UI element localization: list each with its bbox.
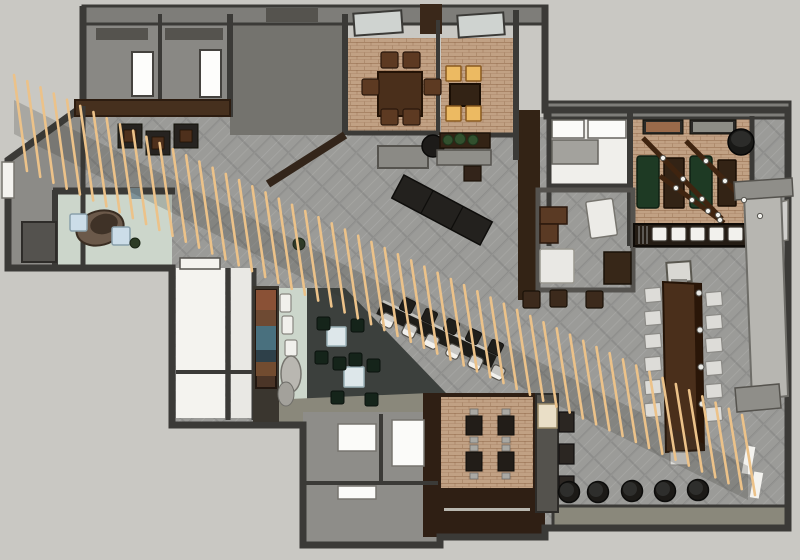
mural-stripe-umber [256, 362, 276, 376]
lounge-chairs-item [317, 317, 330, 330]
dining-chairs-item [362, 79, 379, 95]
terrace-tables-item [466, 452, 482, 471]
terrace-wood-step [444, 508, 530, 511]
ne-room-counter [552, 140, 598, 164]
terrace-chair-nubs-item [470, 445, 478, 451]
communal-chairs-right-item [705, 383, 722, 398]
entry-table-1 [70, 214, 87, 231]
wood-counter-band [75, 100, 230, 116]
small-table [464, 166, 481, 181]
office-stools-item [523, 291, 540, 308]
lounge-chairs-item [365, 393, 378, 406]
black-cylinder-top [731, 131, 751, 147]
dining-table-right [450, 84, 480, 106]
lounge-chairs-item [367, 359, 380, 372]
floorplan-svg [0, 0, 800, 560]
communal-chairs-right-item [705, 314, 722, 329]
beam-lights-item [715, 212, 720, 217]
communal-chairs-left-item [644, 287, 661, 302]
beam-lights-item [660, 155, 665, 160]
office-stools-item [586, 291, 603, 308]
terrace-chair-nubs-item [502, 473, 510, 479]
terrace-chair-nubs-item [470, 437, 478, 443]
topleft-shelf-2 [165, 28, 223, 40]
terrace-tables-item [498, 452, 514, 471]
dining-chairs-item [403, 109, 420, 125]
planter-plant-3 [468, 135, 478, 145]
hall-tables-top-item [152, 137, 164, 149]
panel-cap-top [734, 178, 793, 200]
beam-lights-item [680, 176, 685, 181]
beam-lights-item [722, 178, 727, 183]
corridor-floor [176, 268, 225, 418]
pouf-tops-item [589, 483, 603, 497]
terrace-chair-nubs-item [470, 409, 478, 415]
beam-lights-item [689, 197, 694, 202]
office-stools-item [550, 290, 567, 307]
ne-room-white-1 [552, 120, 584, 138]
communal-chairs-right-item [705, 406, 722, 421]
dining-chairs-item [381, 109, 398, 125]
mural-stripe-rust [256, 290, 276, 310]
lounge-chairs-item [351, 319, 364, 332]
planter-plant-2 [455, 134, 466, 145]
banquette-cushions-item [728, 227, 743, 241]
panel-wall [744, 190, 788, 400]
lounge-chairs-item [333, 357, 346, 370]
floorplan-render [0, 0, 800, 560]
pouf-tops-item [560, 483, 574, 497]
corridor-side-floor [231, 268, 252, 418]
amber-lit-chairs-item [466, 66, 481, 81]
beam-lights-item [699, 196, 704, 201]
leftwing-white-panel [2, 162, 14, 198]
hall-tables-top-item [180, 130, 192, 142]
communal-chairs-right-item [705, 360, 722, 375]
planter-plant-1 [443, 135, 453, 145]
restroom-white-2 [392, 420, 424, 466]
mural-stripe-teal [256, 326, 276, 350]
terrace-tables-item [466, 416, 482, 435]
office-white-bench [540, 249, 574, 283]
dining-chairs-item [424, 79, 441, 95]
entry-plant [130, 238, 140, 248]
office-sofa-1 [540, 207, 567, 224]
ne-room-white-2 [588, 120, 626, 138]
topleft-window-2 [200, 50, 221, 97]
service-counter-2 [437, 150, 491, 165]
terrace-chair-nubs-item [502, 409, 510, 415]
terrace-chair-nubs-item [470, 473, 478, 479]
topleft-window-1 [132, 52, 153, 96]
top-wall-block [266, 8, 318, 22]
dining-chairs-item [403, 52, 420, 68]
amber-lit-chairs-item [446, 66, 461, 81]
beam-lights-item [703, 158, 708, 163]
booth-seat-1 [559, 412, 574, 432]
corridor-door [180, 258, 220, 269]
banquette-cushions-item [671, 227, 686, 241]
stone-feature-2 [278, 382, 294, 406]
banquette-cushions-item [652, 227, 667, 241]
picture-frame-2-art [693, 122, 733, 132]
lounge-chairs-item [315, 351, 328, 364]
panel-cap-bottom [735, 384, 781, 412]
skylight-right [457, 12, 504, 37]
booth-seat-2 [559, 444, 574, 464]
beam-lights-item [717, 217, 722, 222]
dining-chairs-item [381, 52, 398, 68]
service-counter [378, 146, 428, 168]
office-sofa-2 [540, 224, 558, 243]
pouf-tops-item [623, 482, 637, 496]
mural-bench-2 [282, 316, 293, 334]
green-bench-1 [637, 156, 659, 208]
topleft-shelf-1 [96, 28, 148, 40]
banquette-cushions [652, 227, 743, 241]
mural-stripe-brown [256, 310, 276, 326]
amber-lit-chairs-item [466, 106, 481, 121]
table-clamps-item [698, 364, 704, 370]
terrace-chair-nubs-item [502, 437, 510, 443]
communal-chairs-right-item [705, 291, 722, 306]
amber-lit-chairs-item [446, 106, 461, 121]
office-dark-bench [604, 252, 631, 284]
communal-chairs-left-item [644, 402, 661, 417]
mural-art [256, 290, 276, 388]
banquette-cushions-item [690, 227, 705, 241]
terrace-tables-item [498, 416, 514, 435]
communal-chairs-left-item [644, 333, 661, 348]
lounge-chairs-item [331, 391, 344, 404]
picture-frame-1-art [646, 122, 680, 132]
restroom-white-1 [338, 424, 376, 451]
terrace-brick-floor [441, 397, 533, 488]
skylight-left [353, 10, 402, 35]
table-clamps-item [696, 290, 702, 296]
mural-bench-1 [280, 294, 291, 312]
communal-chairs-left-item [644, 356, 661, 371]
cream-seat [538, 404, 557, 428]
beam-lights-item [705, 208, 710, 213]
pouf-tops-item [689, 481, 703, 495]
terrace-chair-nubs-item [502, 445, 510, 451]
pouf-tops-item [656, 482, 670, 496]
entry-table-2 [112, 227, 130, 245]
table-clamps-item [697, 327, 703, 333]
banquette-cushions-item [709, 227, 724, 241]
restroom-white-3 [338, 486, 376, 499]
lounge-chairs-item [349, 353, 362, 366]
mural-bench-3 [285, 340, 297, 356]
mural-stripe-navy [256, 350, 276, 362]
kitchen-block-floor [230, 24, 345, 135]
beam-lights-item [757, 213, 762, 218]
lounge-table-2 [344, 367, 364, 387]
beam-lights-item [741, 197, 746, 202]
office-stools [523, 290, 603, 308]
communal-chairs-left-item [644, 310, 661, 325]
beam-lights-item [673, 185, 678, 190]
office-white-table [586, 198, 618, 238]
leftwing-door [22, 222, 56, 262]
communal-chairs-right-item [705, 337, 722, 352]
